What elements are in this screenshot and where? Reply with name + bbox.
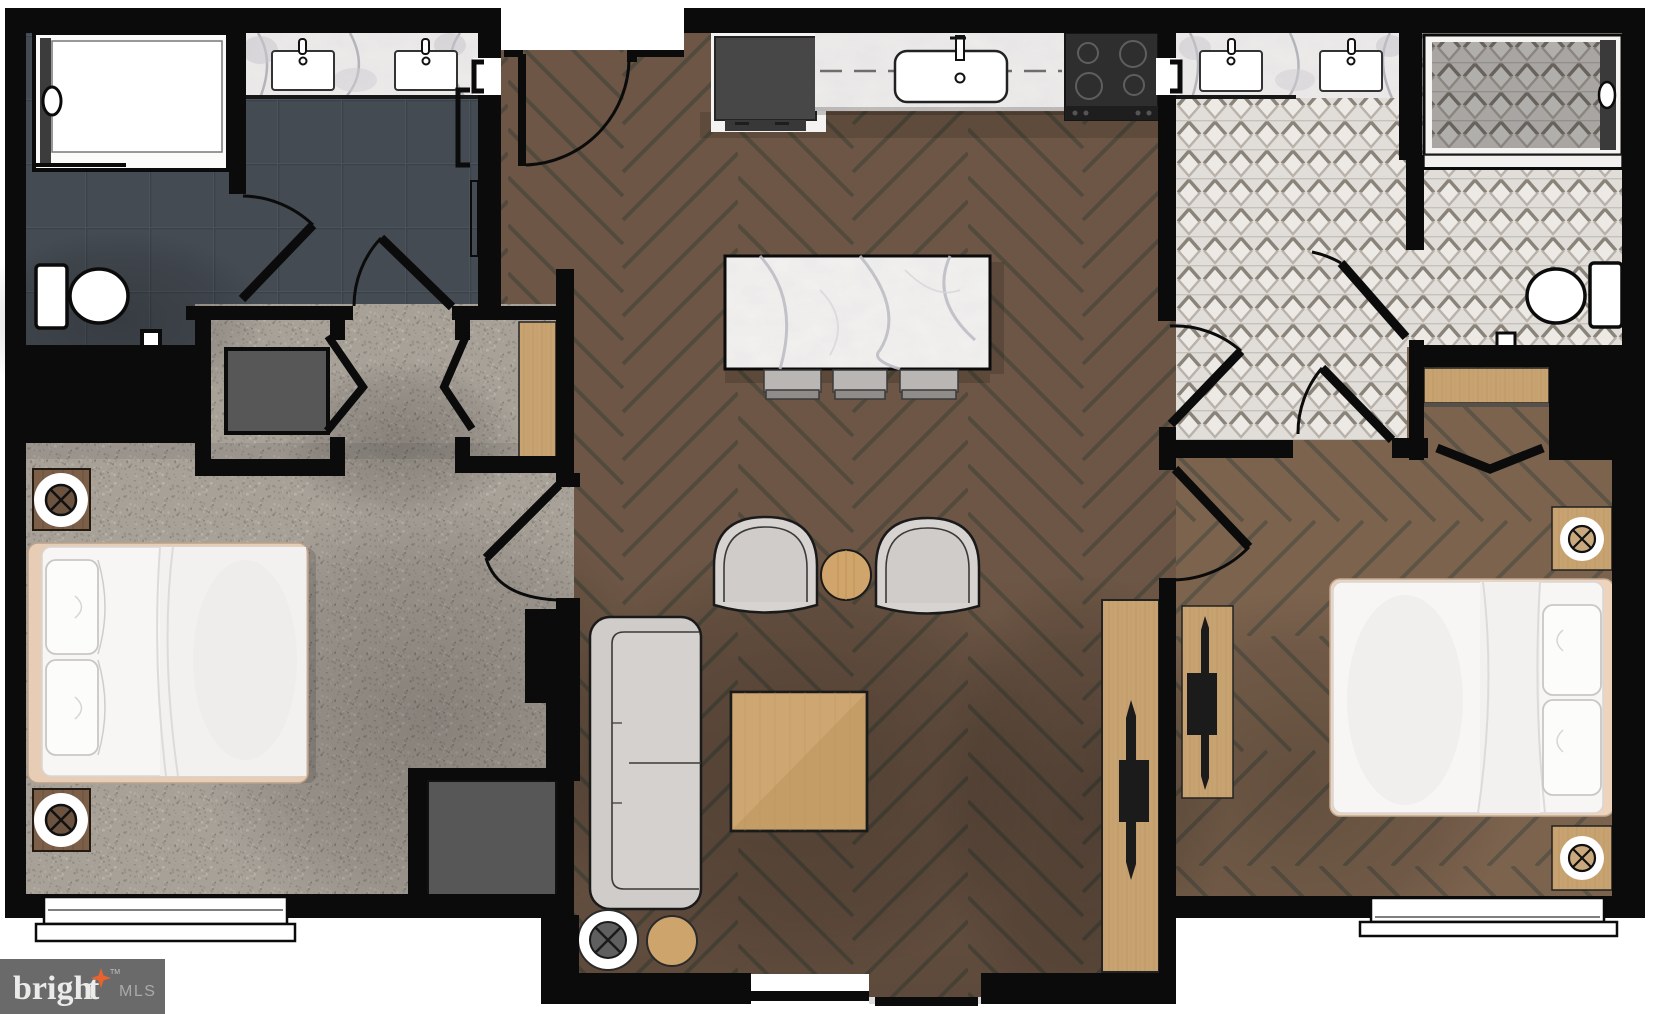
- svg-text:TM: TM: [110, 969, 120, 976]
- svg-text:MLS: MLS: [119, 983, 156, 1000]
- svg-text:t: t: [88, 970, 100, 1007]
- svg-text:brigh: brigh: [13, 970, 92, 1007]
